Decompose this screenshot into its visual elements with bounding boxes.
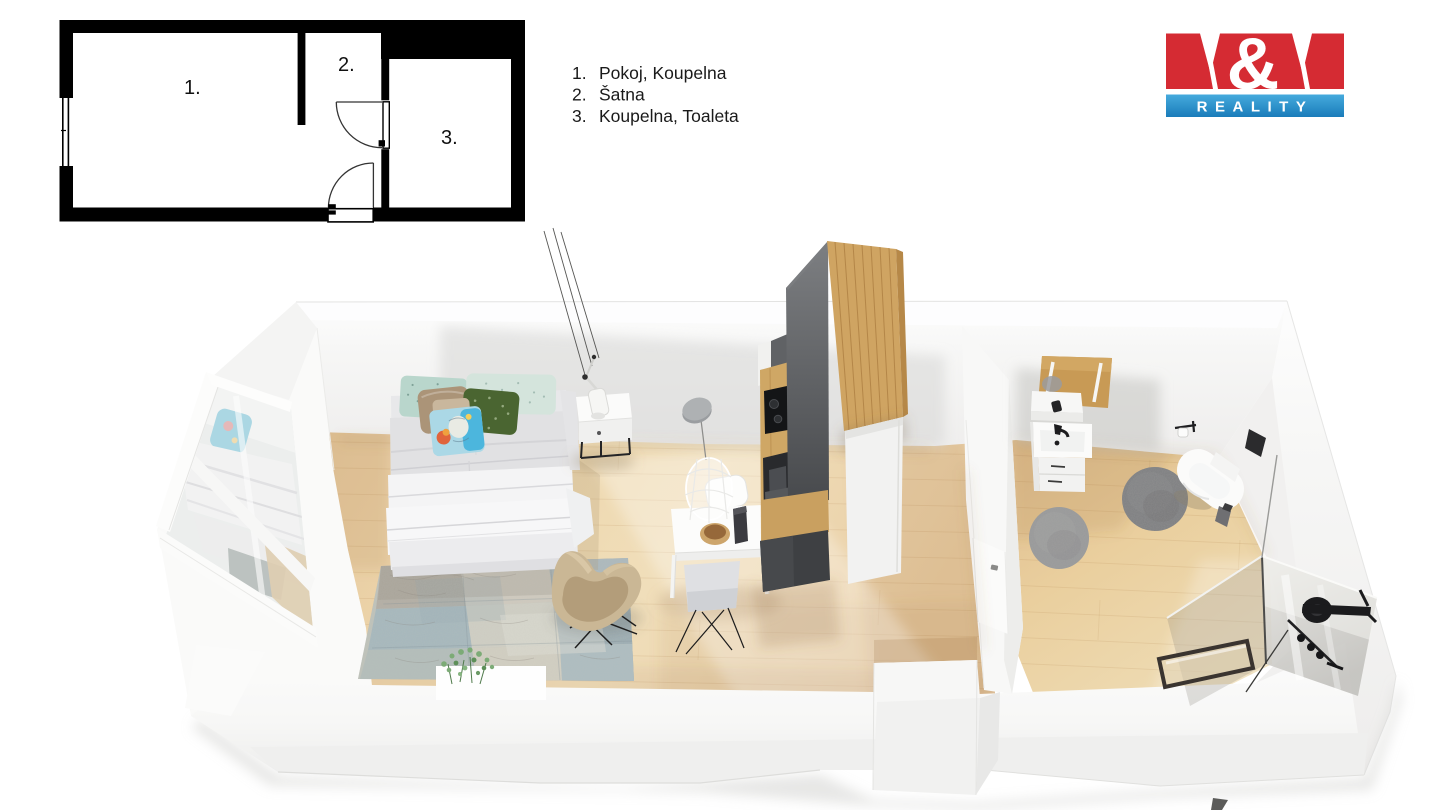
svg-text:2.: 2. xyxy=(572,85,587,105)
svg-text:&: & xyxy=(1227,24,1280,105)
svg-text:REALITY: REALITY xyxy=(1197,99,1314,116)
svg-text:Pokoj, Koupelna: Pokoj, Koupelna xyxy=(599,63,727,83)
svg-text:Šatna: Šatna xyxy=(599,84,645,105)
svg-text:Koupelna, Toaleta: Koupelna, Toaleta xyxy=(599,106,739,126)
svg-text:2.: 2. xyxy=(338,54,355,76)
svg-text:3.: 3. xyxy=(441,127,458,149)
svg-text:1.: 1. xyxy=(184,77,201,99)
svg-text:3.: 3. xyxy=(572,106,587,126)
svg-text:1.: 1. xyxy=(572,63,587,83)
